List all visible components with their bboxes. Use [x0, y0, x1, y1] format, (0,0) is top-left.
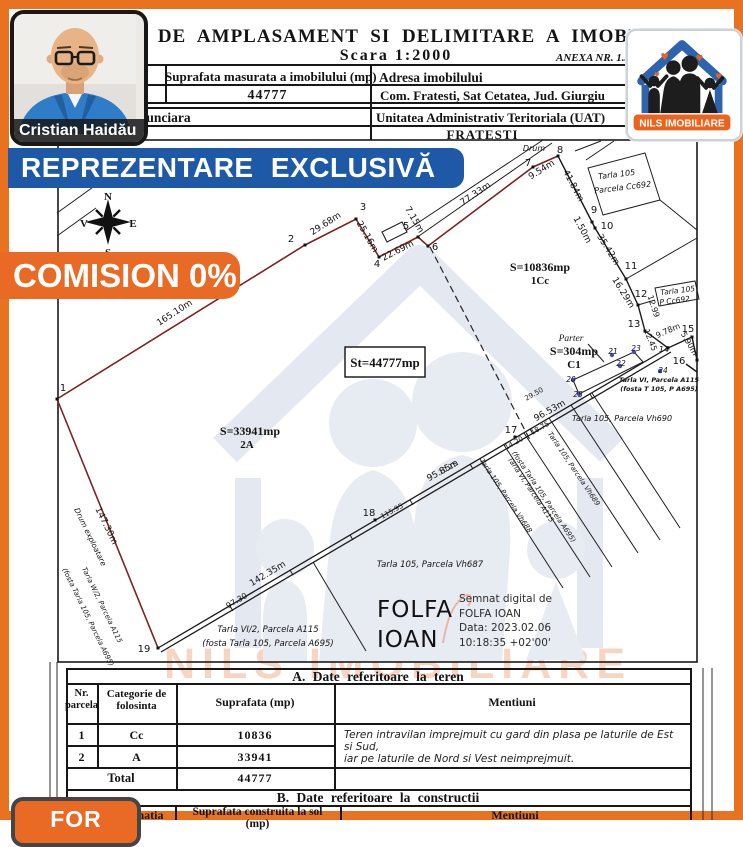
col-suprafata-sol: Suprafata construita la sol	[175, 806, 340, 818]
col-nr: Nr.	[66, 688, 97, 699]
table-a-title: A. Date referitoare la teren	[66, 669, 690, 685]
surveyor-name: FOLFA IOAN	[377, 595, 453, 655]
total-value: 44777	[176, 771, 334, 786]
agent-portrait	[14, 14, 136, 134]
cell-suprafata: 33941	[176, 750, 334, 765]
table-line	[66, 723, 690, 725]
col-nr: parcela	[64, 700, 99, 711]
measured-area-label: Suprafata masurata a imobilului (mp)	[165, 69, 370, 85]
table-b-title: B. Date referitoare la constructii	[66, 790, 690, 806]
header-table-line	[60, 64, 700, 66]
agent-photo-card: Cristian Haidău	[10, 10, 148, 146]
cell-nr: 2	[66, 750, 97, 765]
exclusive-banner: REPREZENTARE EXCLUSIVĂ	[8, 148, 464, 188]
uat-label: Unitatea Administrativ Teritoriala (UAT)	[376, 110, 605, 126]
mentions-line: Teren intravilan imprejmuit cu gard din …	[344, 729, 684, 753]
commission-banner: COMISION 0%	[0, 252, 240, 299]
col-categorie: folosinta	[97, 700, 176, 712]
cell-categorie: A	[97, 750, 176, 765]
col-mentiuni: Mentiuni	[334, 695, 690, 710]
col-suprafata: Suprafata (mp)	[176, 695, 334, 710]
table-line	[66, 767, 690, 769]
agency-logo-icon: ♥ ♥ ♥ ♥ NILS IMOBILIARE	[628, 31, 736, 135]
mentions-line: iar pe laturile de Nord si Vest neimprej…	[344, 753, 684, 765]
cell-suprafata: 10836	[176, 728, 334, 743]
surveyor-name-line: IOAN	[377, 625, 453, 655]
heart-icon: ♥	[715, 72, 722, 81]
exclusive-banner-label: REPREZENTARE EXCLUSIVĂ	[8, 152, 436, 184]
agency-logo-label: NILS IMOBILIARE	[639, 118, 725, 129]
agent-name: Cristian Haidău	[14, 119, 144, 142]
col-categorie: Categorie de	[97, 688, 176, 700]
table-line	[690, 668, 692, 820]
digital-signature-line: FOLFA IOAN	[459, 607, 552, 622]
heart-icon: ♥	[654, 71, 660, 79]
col-mentiuni-b: Mentiuni	[340, 808, 690, 823]
digital-signature: Semnat digital de FOLFA IOAN Data: 2023.…	[459, 592, 552, 650]
cell-categorie: Cc	[97, 728, 176, 743]
for-badge: FOR	[11, 797, 141, 847]
uat-value: FRATESTI	[380, 127, 585, 143]
heart-icon: ♥	[695, 54, 703, 64]
digital-signature-line: Semnat digital de	[459, 592, 552, 607]
agency-logo: ♥ ♥ ♥ ♥ NILS IMOBILIARE	[626, 29, 742, 141]
digital-signature-line: 10:18:35 +02'00'	[459, 636, 552, 651]
for-badge-label: FOR	[50, 801, 102, 843]
surveyor-name-line: FOLFA	[377, 595, 453, 625]
measured-area-value: 44777	[165, 88, 370, 104]
digital-signature-line: Data: 2023.02.06	[459, 621, 552, 636]
address-label: Adresa imobilului	[379, 70, 483, 86]
heart-icon: ♥	[660, 52, 669, 63]
address-value: Com. Fratesti, Sat Cetatea, Jud. Giurgiu	[380, 88, 605, 104]
annex-number: ANEXA NR. 1.35	[556, 52, 635, 64]
cell-nr: 1	[66, 728, 97, 743]
page-title: PLAN DE AMPLASAMENT SI DELIMITARE A IMOB…	[90, 26, 702, 48]
total-label: Total	[66, 771, 176, 786]
commission-banner-label: COMISION 0%	[0, 257, 237, 295]
header-table-line	[60, 107, 700, 109]
table-line	[66, 745, 334, 747]
